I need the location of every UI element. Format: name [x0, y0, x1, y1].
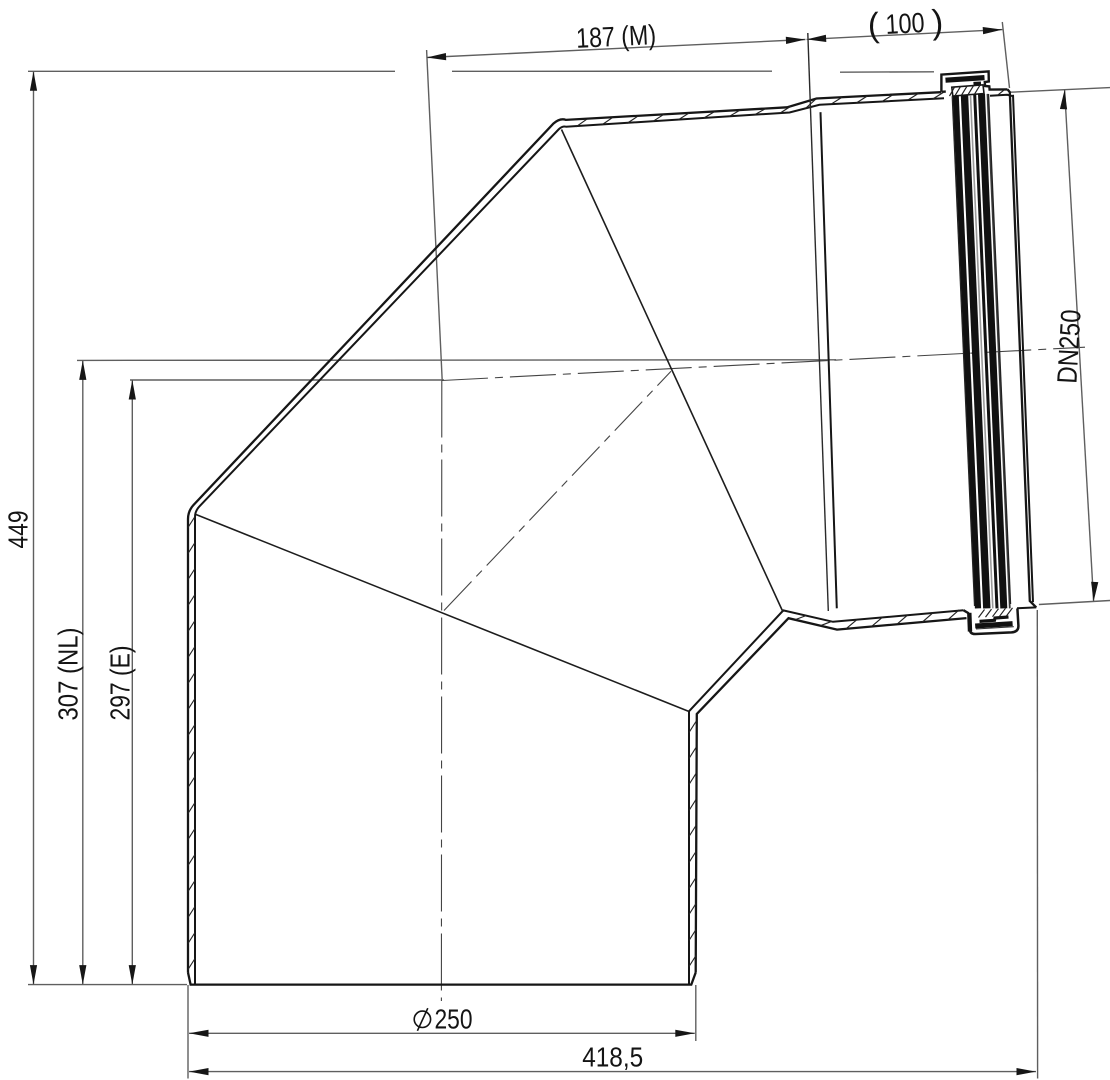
svg-text:307 (NL): 307 (NL)	[53, 628, 84, 721]
svg-text:): )	[931, 3, 944, 42]
svg-text:DN250: DN250	[1051, 309, 1086, 385]
svg-text:297 (E): 297 (E)	[105, 646, 136, 721]
svg-text:250: 250	[435, 1003, 473, 1034]
svg-text:100: 100	[885, 7, 926, 40]
svg-text:418,5: 418,5	[582, 1042, 643, 1073]
svg-text:449: 449	[3, 511, 34, 549]
svg-text:187 (M): 187 (M)	[575, 19, 656, 54]
